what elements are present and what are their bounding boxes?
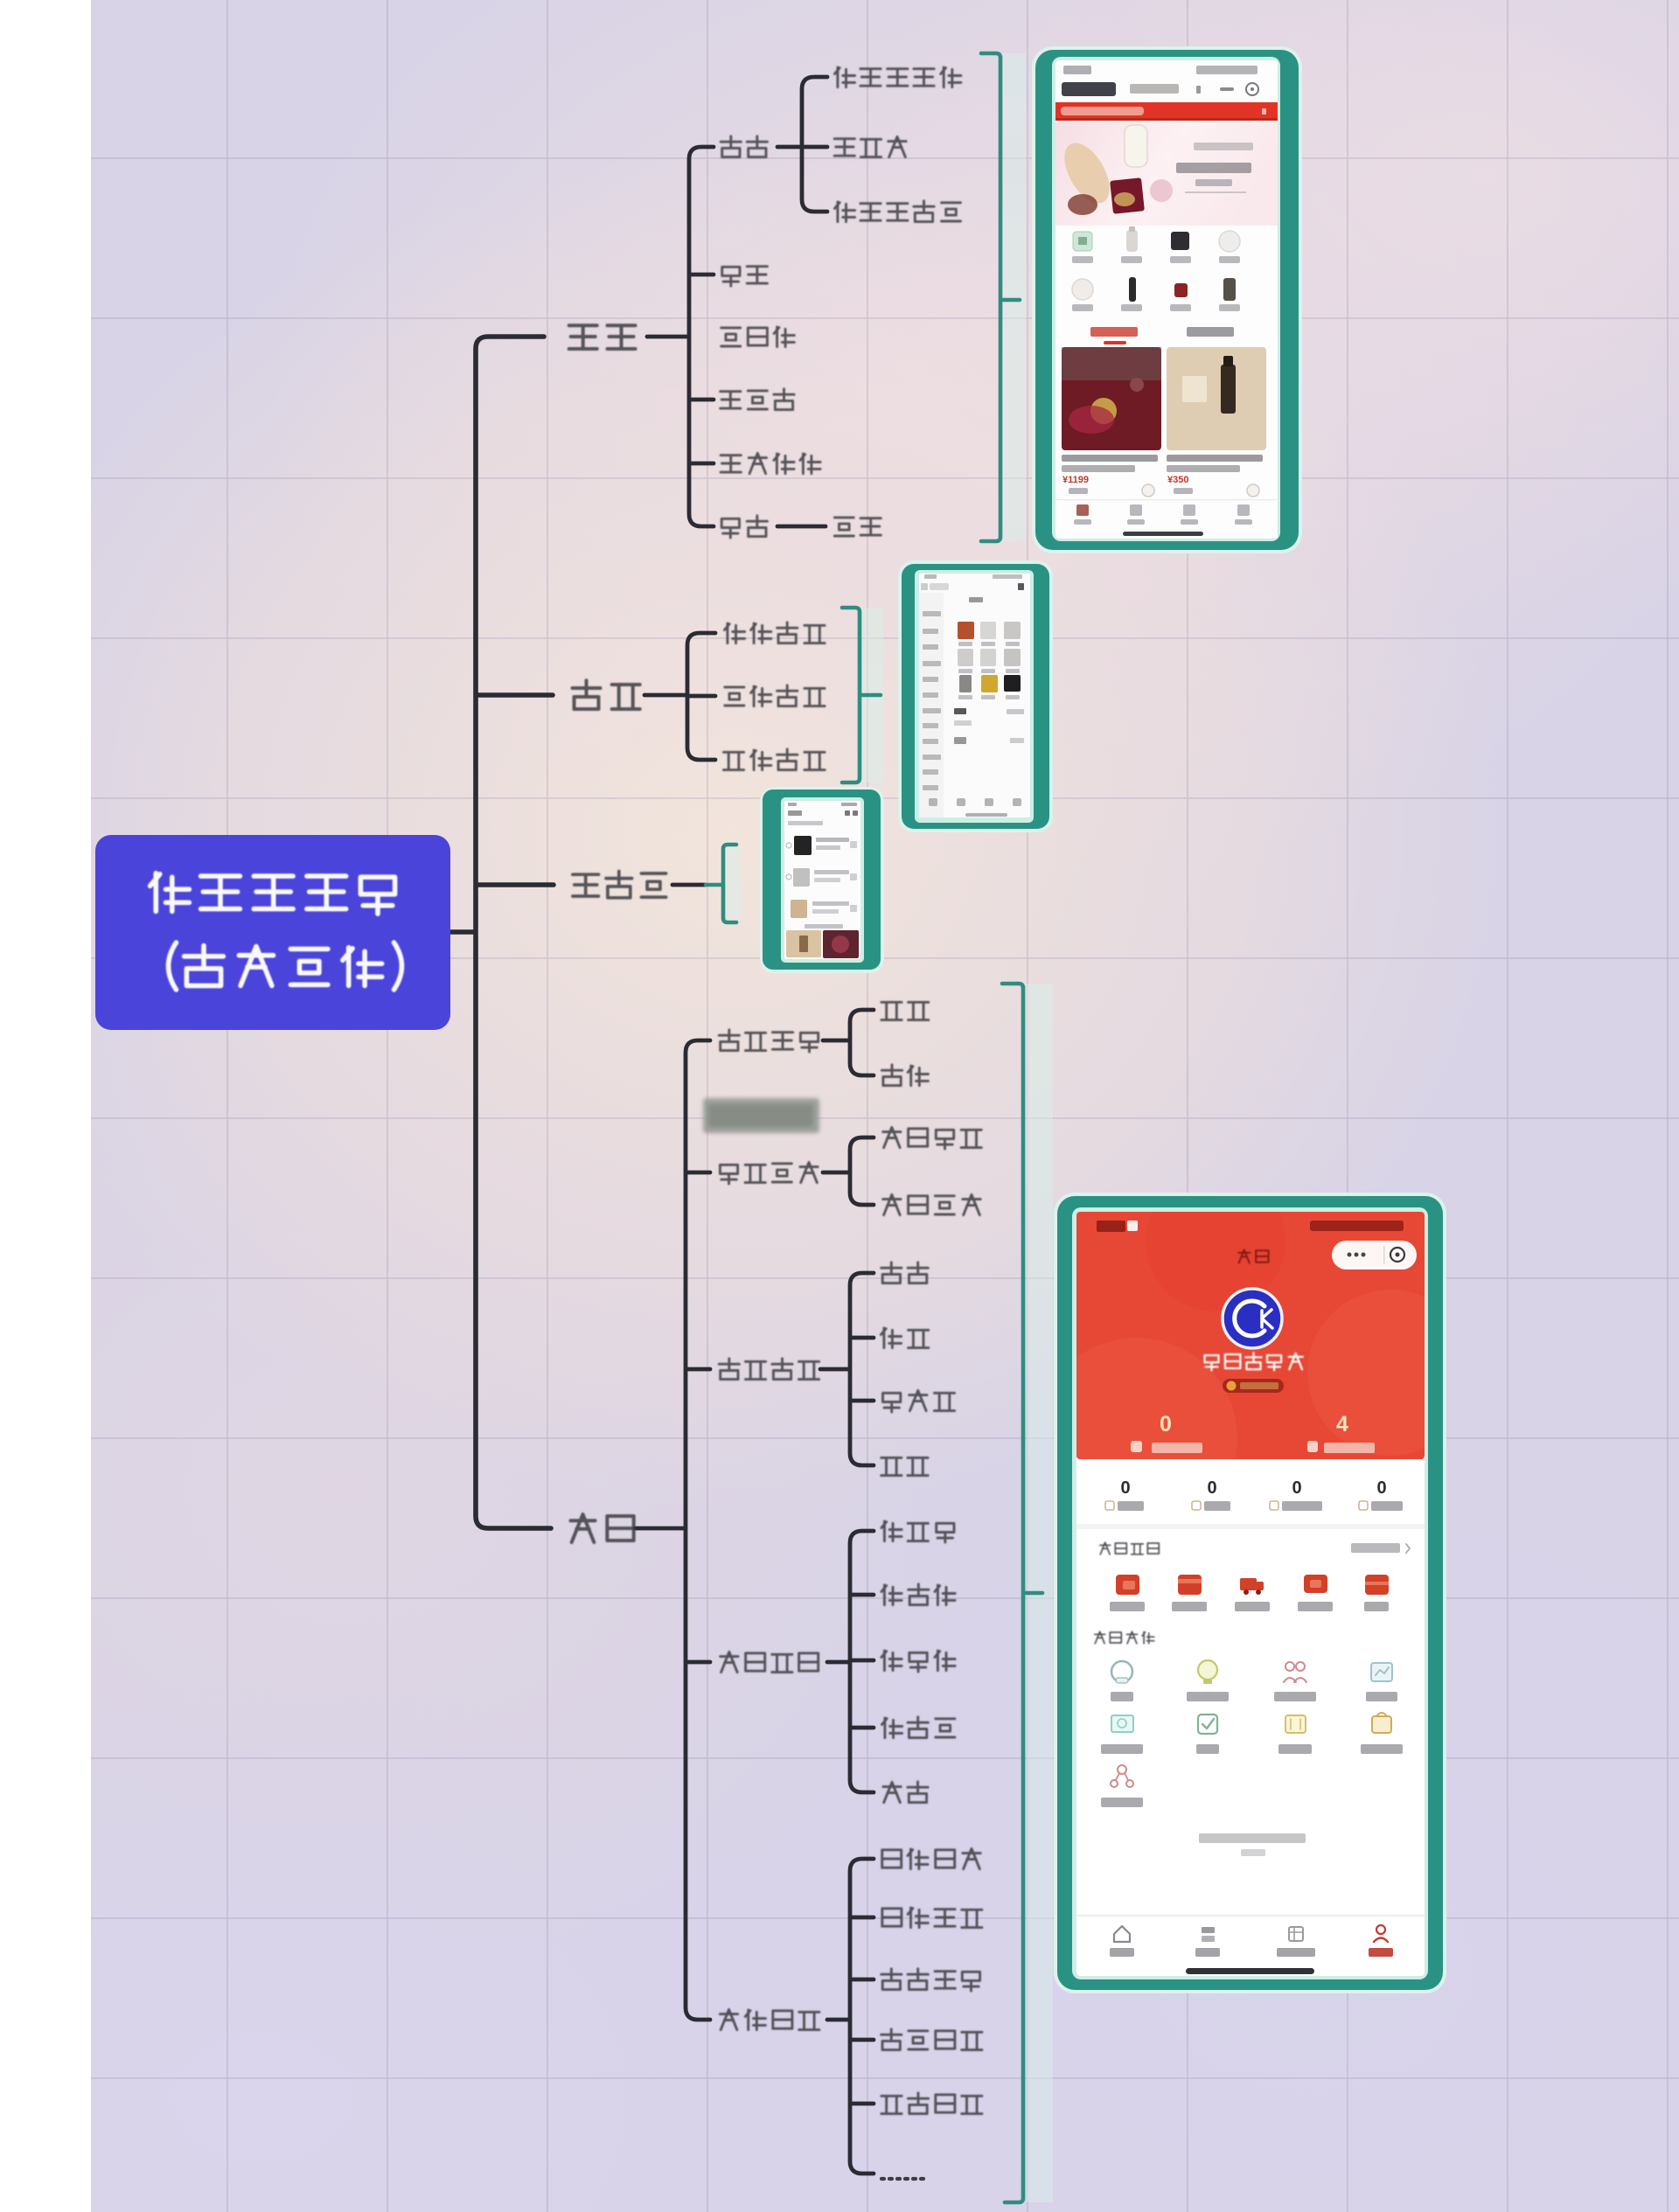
svg-text:0: 0 [1120,1478,1130,1498]
svg-text:0: 0 [1292,1478,1301,1498]
svg-text:0: 0 [1160,1412,1172,1436]
svg-text:¥1199: ¥1199 [1062,475,1089,485]
svg-text:0: 0 [1376,1478,1386,1498]
svg-text:0: 0 [1207,1478,1216,1498]
svg-text:4: 4 [1336,1412,1348,1436]
svg-text:¥350: ¥350 [1167,475,1188,485]
